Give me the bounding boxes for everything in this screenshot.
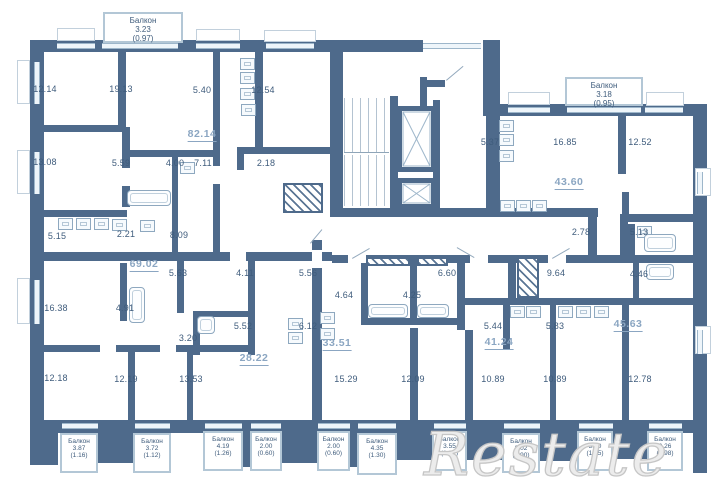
stairs-landing-line [344,152,389,155]
room-area-label: 5.40 [174,85,230,95]
room-area-label: 8.09 [151,230,207,240]
appliance-fixture [240,58,255,70]
wall-segment [693,104,707,433]
bathtub-fixture [417,304,449,318]
window-ledge [508,92,550,105]
wall-segment [330,52,343,215]
room-area-label: 7.11 [175,158,231,168]
balcony: Балкон3.72(1.12) [133,433,171,473]
door-gap [213,166,220,184]
wall-segment [463,298,693,305]
room-area-label: 5.44 [465,321,521,331]
room-area-label: 2.21 [98,229,154,239]
room-area-label: 12.78 [612,374,668,384]
room-area-label: 4.25 [384,290,440,300]
wall-segment [361,318,465,325]
appliance-fixture [594,306,609,318]
window [135,423,170,429]
window-ledge [264,30,316,42]
wall-segment [255,40,263,152]
wall-segment [598,255,697,263]
room-area-label: 19.13 [93,84,149,94]
room-area-label: 12.18 [28,373,84,383]
appliance-fixture [532,200,547,212]
appliance-fixture [500,200,515,212]
room-area-label: 4.64 [316,290,372,300]
appliance-fixture [526,306,541,318]
wall-segment [37,125,122,132]
room-area-label: 12.14 [17,84,73,94]
apartment-total-label: 69.02 [130,258,159,272]
appliance-fixture [499,120,514,132]
room-area-label: 13.08 [17,157,73,167]
room-area-label: 4.11 [217,268,273,278]
apartment-total-label: 45.63 [614,318,643,332]
stairs [344,98,389,206]
appliance-fixture [499,150,514,162]
appliance-fixture [240,72,255,84]
room-area-label: 5.52 [215,321,271,331]
appliance-fixture [558,306,573,318]
wall-segment [425,80,445,87]
window [251,423,281,429]
bathtub-fixture [197,316,215,334]
balcony: Балкон3.87(1.16) [60,433,98,473]
wall-segment [330,208,598,217]
room-area-label: 6.12 [280,321,336,331]
apartment-total-label: 43.60 [555,176,584,190]
balcony: Балкон3.23(0.97) [103,12,183,43]
room-area-label: 2.18 [238,158,294,168]
balcony-label: Балкон3.23(0.97) [105,14,181,43]
window [34,280,40,324]
balcony-label: Балкон3.72(1.12) [135,435,169,459]
room-area-label: 5.37 [462,137,518,147]
window [102,43,178,49]
vent-shaft-hatch [366,257,410,266]
window-ledge [57,28,95,41]
wall-segment [361,258,368,320]
wall-segment [508,257,516,302]
window [697,172,703,194]
window [205,423,242,429]
window [266,43,314,49]
bathtub-fixture [127,190,171,206]
watermark-restate: Restate [424,420,724,488]
wall-segment [122,150,220,157]
appliance-fixture [510,306,525,318]
room-area-label: 9.64 [528,268,584,278]
vent-shaft-hatch [417,257,448,266]
wall-segment [30,433,58,465]
elevator-icon [397,106,436,172]
appliance-fixture [576,306,591,318]
wall-segment [350,433,357,467]
wall-segment [187,352,193,420]
room-area-label: 12.54 [235,85,291,95]
bathtub-fixture [368,304,408,318]
room-area-label: 12.19 [98,374,154,384]
balcony: Балкон3.18(0.95) [565,77,643,106]
vent-shaft-hatch [283,183,323,213]
balcony: Балкон2.00(0.60) [250,431,282,471]
room-area-label: 5.56 [280,268,336,278]
balcony: Балкон2.00(0.60) [317,431,350,471]
balcony-label: Балкон3.87(1.16) [62,435,96,459]
room-area-label: 5.63 [150,268,206,278]
room-area-label: 16.38 [28,303,84,313]
wall-segment [282,433,317,463]
floor-plan: Restate 12.1419.135.4012.5413.085.594.00… [0,0,725,488]
door-gap [230,252,246,261]
window [508,107,550,113]
room-area-label: 6.60 [419,268,475,278]
wall-segment [622,192,629,216]
window-ledge [17,278,30,324]
window-ledge [646,92,684,106]
window [62,423,98,429]
window [645,107,683,113]
wall-segment [486,112,500,216]
elevator-icon [397,178,436,209]
door-gap [100,345,116,352]
balcony-label: Балкон3.18(0.95) [567,79,641,108]
room-area-label: 12.09 [385,374,441,384]
wall-segment [30,210,127,217]
window [318,423,350,429]
room-area-label: 13.53 [163,374,219,384]
appliance-fixture [516,200,531,212]
room-area-label: 5.59 [93,158,149,168]
window [697,330,703,354]
wall-segment [410,258,417,320]
door-gap [160,345,176,352]
room-area-label: 2.78 [553,227,609,237]
window [57,43,95,49]
window-ledge [196,29,240,41]
window [196,43,240,49]
room-area-label: 10.89 [465,374,521,384]
door-gap [122,168,130,186]
balcony-label: Балкон4.19(1.26) [205,433,241,457]
wall-segment [620,214,697,222]
room-area-label: 12.52 [612,137,668,147]
apartment-total-label: 33.51 [323,337,352,351]
wall-segment [237,147,332,154]
apartment-total-label: 41.24 [485,336,514,350]
window [423,43,481,49]
wall-segment [243,433,250,467]
appliance-fixture [241,104,256,116]
door-gap [312,250,322,268]
balcony-label: Балкон2.00(0.60) [319,433,348,457]
apartment-total-label: 82.14 [188,128,217,142]
window [358,423,396,429]
room-area-label: 10.89 [527,374,583,384]
wall-segment [172,157,178,255]
door-leaf [446,66,463,81]
room-area-label: 4.46 [611,269,667,279]
room-area-label: 3.20 [160,333,216,343]
balcony: Балкон4.35(1.30) [357,433,397,475]
wall-segment [177,257,184,313]
room-area-label: 5.83 [527,321,583,331]
appliance-fixture [288,332,303,344]
wall-segment [37,345,250,352]
appliance-fixture [58,218,73,230]
room-area-label: 4.91 [97,303,153,313]
window [34,62,40,104]
balcony-label: Балкон2.00(0.60) [252,433,280,457]
room-area-label: 16.85 [537,137,593,147]
apartment-total-label: 28.22 [240,352,269,366]
room-area-label: 5.13 [611,227,667,237]
wall-segment [213,52,220,256]
wall-segment [98,433,133,463]
balcony: Балкон4.19(1.26) [203,431,243,471]
balcony-label: Балкон4.35(1.30) [359,435,395,459]
room-area-label: 15.29 [318,374,374,384]
appliance-fixture [76,218,91,230]
wall-segment [128,352,135,420]
room-area-label: 5.15 [29,231,85,241]
window-ledge [17,60,30,104]
